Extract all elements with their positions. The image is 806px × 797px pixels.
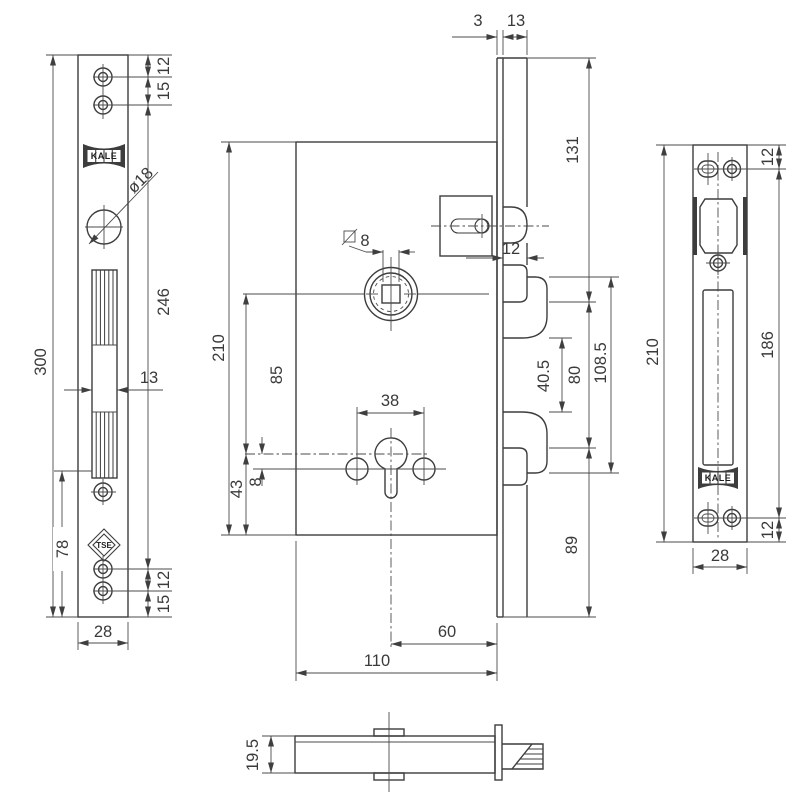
square-symbol: [342, 229, 357, 245]
dim-strike-height: 210: [644, 338, 662, 366]
lower-bolt: [503, 448, 527, 485]
dim-faceplate-offset: 13: [507, 12, 525, 30]
latch-opening: [700, 199, 737, 253]
dim-slot-width: 13: [140, 369, 158, 387]
dim-strike-hole-span: 186: [759, 331, 777, 359]
dim-top-offset: 12: [155, 57, 173, 75]
faceplate-outline: [78, 55, 128, 617]
latch-follower-detail: [440, 196, 492, 256]
dim-case-thickness: 19.5: [244, 739, 262, 771]
tse-logo-text: TSE: [96, 541, 112, 550]
dim-bottom-spacing: 12: [155, 571, 173, 589]
lock-case-front-view: [243, 142, 497, 650]
dim-bolt-gap: 40.5: [535, 360, 553, 392]
ribbed-slot: [92, 270, 117, 478]
lock-case-dimensions: 8 38 8 85 43 210 60 110: [210, 142, 497, 681]
faceplate-front-view: KALE ø18 TSE: [78, 55, 158, 617]
dim-hole-dia: ø18: [124, 164, 157, 197]
upper-bolt-lobe: [503, 277, 547, 338]
latch-bolt: [503, 207, 527, 243]
latch-bolt-top-view: [502, 744, 543, 769]
side-tab-right: [743, 197, 747, 255]
faceplate-bottom-edge: [495, 725, 502, 780]
technical-drawing-page: KALE ø18 TSE: [0, 0, 806, 797]
dim-strike-bottom-offset: 12: [759, 521, 777, 539]
upper-bolt: [503, 265, 527, 302]
dim-top-spacing: 15: [155, 82, 173, 100]
dim-top-span: 131: [564, 136, 582, 164]
lower-bolt-lobe: [503, 412, 547, 473]
dim-strike-top-offset: 12: [759, 148, 777, 166]
dim-cyl-to-edge: 43: [228, 480, 246, 498]
side-view-dimensions: 3 13 12 131 80 89 40.5 108.5: [452, 12, 619, 617]
dim-plate-width: 28: [94, 623, 112, 641]
dim-square-size: 8: [360, 232, 369, 250]
kale-logo-text: KALE: [91, 151, 118, 161]
faceplate-front-dimensions: 300 12 15 246 12 15 13 78 28: [32, 55, 173, 650]
dim-overall-length: 300: [32, 348, 50, 376]
spindle-hub: [365, 257, 418, 331]
dim-case-depth: 110: [364, 652, 390, 670]
dim-backset: 60: [438, 623, 456, 641]
strike-plate-dimensions: 210 12 186 12 28: [644, 145, 786, 574]
dim-strike-width: 28: [711, 547, 729, 565]
dim-bolt-span: 80: [566, 366, 584, 384]
dim-hole-span: 246: [155, 288, 173, 316]
dim-hole-offset: 8: [247, 477, 265, 486]
kale-logo-text-2: KALE: [705, 473, 732, 483]
dim-bottom-span: 89: [563, 536, 581, 554]
dim-lower-section: 78: [54, 540, 72, 558]
dim-protrusion: 12: [502, 240, 520, 258]
tse-logo: TSE: [88, 529, 120, 561]
dim-spindle-to-cyl: 85: [268, 366, 286, 384]
dim-outer-span: 108.5: [592, 342, 610, 383]
dim-bottom-edge: 15: [155, 595, 173, 613]
kale-logo: KALE: [83, 144, 125, 168]
bottom-view: 19.5: [244, 712, 543, 792]
dim-screw-span: 38: [381, 392, 399, 410]
dim-case-height: 210: [210, 334, 228, 362]
side-tab-left: [693, 197, 697, 255]
mortise-lock-drawing: KALE ø18 TSE: [0, 0, 806, 797]
dim-faceplate-thickness: 3: [473, 12, 482, 30]
